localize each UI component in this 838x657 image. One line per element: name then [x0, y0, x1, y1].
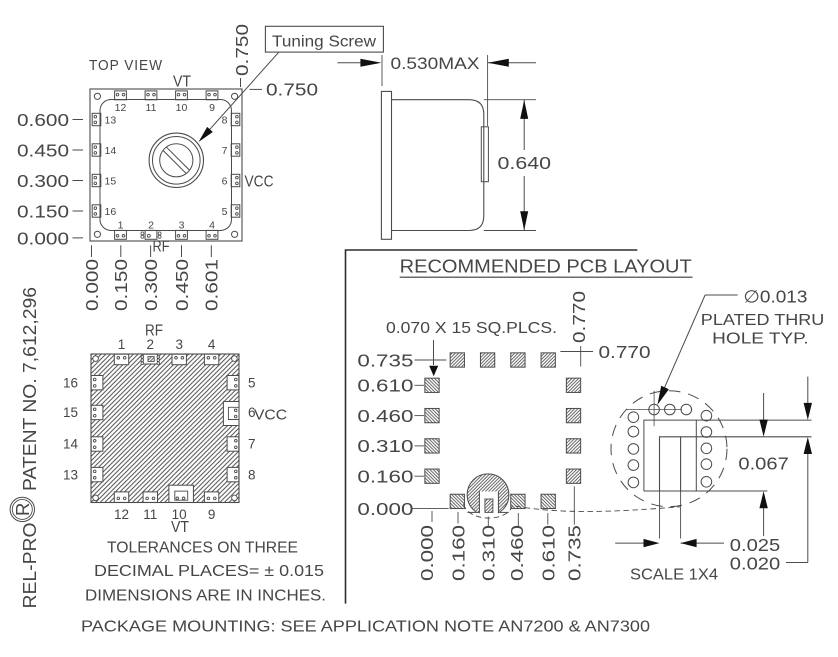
- svg-text:15: 15: [63, 405, 78, 420]
- svg-text:0.160: 0.160: [448, 525, 468, 581]
- svg-text:16: 16: [63, 375, 78, 390]
- svg-text:VT: VT: [171, 519, 189, 536]
- svg-text:0.300: 0.300: [17, 171, 69, 191]
- svg-text:13: 13: [63, 467, 78, 482]
- svg-text:0.450: 0.450: [172, 259, 192, 311]
- svg-text:0.150: 0.150: [17, 201, 69, 221]
- svg-text:7: 7: [248, 437, 256, 452]
- svg-text:0.770: 0.770: [599, 342, 651, 362]
- svg-text:1: 1: [118, 337, 126, 352]
- svg-text:14: 14: [63, 437, 79, 452]
- svg-text:0.770: 0.770: [569, 291, 589, 343]
- svg-text:0.460: 0.460: [507, 525, 527, 581]
- svg-text:3: 3: [179, 219, 185, 231]
- svg-text:0.750: 0.750: [266, 80, 318, 100]
- svg-text:RECOMMENDED PCB LAYOUT: RECOMMENDED PCB LAYOUT: [400, 256, 692, 277]
- svg-text:0.610: 0.610: [357, 376, 413, 396]
- svg-text:R: R: [12, 503, 33, 516]
- svg-text:8: 8: [222, 115, 228, 127]
- svg-text:0.160: 0.160: [357, 467, 413, 487]
- svg-text:0.020: 0.020: [730, 554, 781, 574]
- svg-text:3: 3: [175, 337, 183, 352]
- svg-text:0.450: 0.450: [17, 140, 69, 160]
- svg-text:4: 4: [208, 337, 216, 352]
- svg-text:0.300: 0.300: [141, 259, 161, 311]
- svg-text:PLATED THRU: PLATED THRU: [701, 312, 825, 329]
- svg-text:Tuning Screw: Tuning Screw: [272, 34, 377, 51]
- svg-text:0.610: 0.610: [538, 525, 558, 581]
- svg-text:13: 13: [105, 115, 117, 127]
- svg-text:14: 14: [105, 145, 117, 157]
- svg-text:5: 5: [248, 375, 256, 390]
- svg-text:6: 6: [222, 176, 228, 188]
- svg-text:TOP VIEW: TOP VIEW: [89, 58, 163, 74]
- svg-text:0.600: 0.600: [17, 110, 69, 130]
- svg-text:0.310: 0.310: [479, 525, 499, 581]
- svg-text:0.070 X 15 SQ.PLCS.: 0.070 X 15 SQ.PLCS.: [386, 320, 557, 337]
- svg-text:0.000: 0.000: [17, 228, 69, 248]
- svg-text:8: 8: [248, 467, 256, 482]
- svg-text:RF: RF: [153, 239, 170, 256]
- svg-text:DECIMAL PLACES= ± 0.015: DECIMAL PLACES= ± 0.015: [94, 563, 324, 580]
- svg-text:9: 9: [208, 507, 216, 522]
- svg-text:15: 15: [105, 176, 117, 188]
- svg-text:0.735: 0.735: [357, 350, 413, 370]
- svg-text:REL-PRO: REL-PRO: [20, 523, 40, 609]
- svg-text:0.735: 0.735: [565, 525, 585, 581]
- svg-text:0.000: 0.000: [417, 525, 437, 581]
- svg-text:11: 11: [143, 507, 157, 522]
- svg-text:12: 12: [115, 102, 127, 114]
- svg-text:1: 1: [118, 219, 124, 231]
- svg-text:0.640: 0.640: [498, 153, 552, 173]
- svg-text:4: 4: [209, 219, 215, 231]
- svg-text:11: 11: [146, 102, 157, 114]
- svg-text:0.530MAX: 0.530MAX: [391, 54, 480, 73]
- svg-text:12: 12: [114, 507, 129, 522]
- svg-text:0.601: 0.601: [202, 259, 222, 311]
- svg-text:16: 16: [105, 206, 117, 218]
- svg-text:0.000: 0.000: [82, 259, 102, 311]
- svg-text:PATENT NO. 7,612,296: PATENT NO. 7,612,296: [20, 287, 40, 491]
- svg-text:RF: RF: [145, 323, 163, 340]
- svg-text:TOLERANCES ON THREE: TOLERANCES ON THREE: [107, 540, 298, 557]
- svg-text:7: 7: [222, 145, 228, 157]
- svg-text:0.000: 0.000: [357, 499, 413, 519]
- svg-text:9: 9: [209, 102, 215, 114]
- svg-text:0.150: 0.150: [111, 259, 131, 311]
- svg-text:PACKAGE MOUNTING: SEE APPLICAT: PACKAGE MOUNTING: SEE APPLICATION NOTE A…: [81, 619, 650, 636]
- svg-text:∅0.013: ∅0.013: [743, 286, 807, 306]
- svg-text:HOLE TYP.: HOLE TYP.: [712, 330, 809, 347]
- svg-text:5: 5: [222, 206, 228, 218]
- svg-text:VCC: VCC: [254, 406, 287, 423]
- svg-text:0.310: 0.310: [357, 436, 413, 456]
- svg-text:VT: VT: [173, 74, 191, 91]
- svg-text:10: 10: [176, 102, 188, 114]
- svg-text:2: 2: [148, 219, 154, 231]
- svg-text:0.067: 0.067: [738, 453, 788, 473]
- svg-text:0.750: 0.750: [232, 24, 252, 76]
- svg-text:VCC: VCC: [245, 174, 274, 191]
- svg-text:0.460: 0.460: [357, 406, 413, 426]
- svg-text:DIMENSIONS ARE IN INCHES.: DIMENSIONS ARE IN INCHES.: [85, 588, 326, 605]
- svg-text:SCALE 1X4: SCALE 1X4: [630, 567, 718, 584]
- svg-text:0.025: 0.025: [730, 535, 780, 555]
